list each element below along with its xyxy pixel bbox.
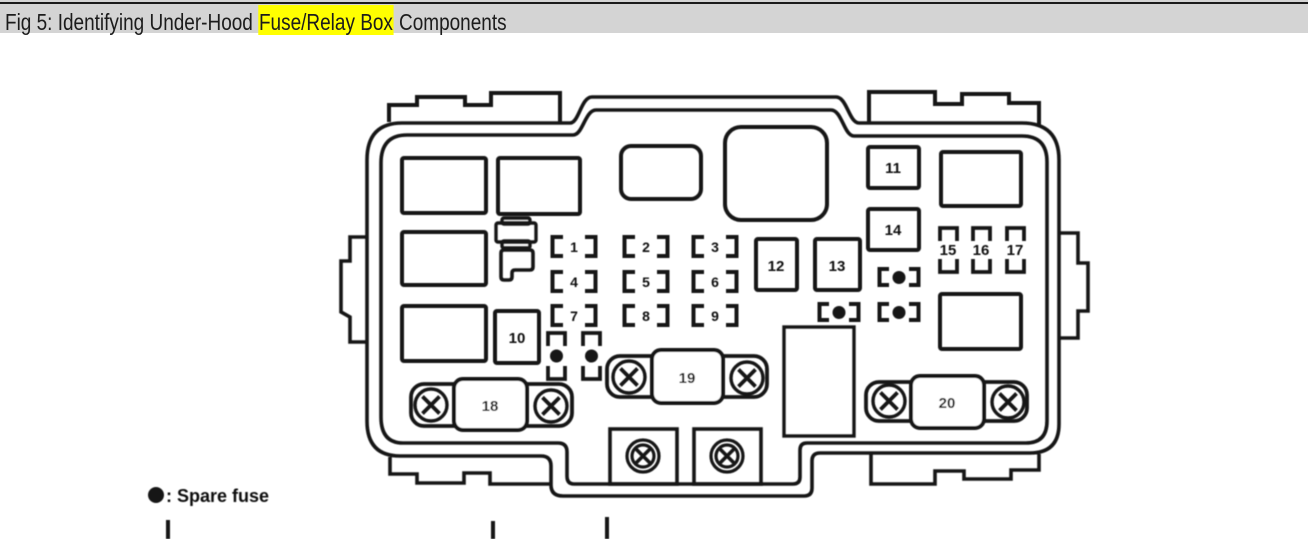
svg-text:10: 10 [509, 330, 526, 347]
svg-text:4: 4 [570, 274, 578, 290]
svg-text:5: 5 [642, 274, 650, 290]
svg-text:: Spare fuse: : Spare fuse [166, 486, 269, 506]
svg-text:6: 6 [711, 274, 719, 290]
svg-text:9: 9 [711, 308, 719, 324]
svg-text:20: 20 [939, 395, 956, 412]
svg-text:8: 8 [642, 308, 650, 324]
svg-text:17: 17 [1007, 242, 1024, 259]
svg-text:18: 18 [482, 398, 499, 415]
svg-text:12: 12 [768, 258, 785, 275]
svg-text:16: 16 [973, 242, 990, 259]
svg-text:19: 19 [679, 370, 696, 387]
svg-text:3: 3 [711, 239, 719, 255]
svg-text:11: 11 [885, 160, 901, 177]
svg-text:7: 7 [570, 308, 578, 324]
svg-text:14: 14 [885, 222, 902, 239]
svg-text:15: 15 [940, 242, 957, 259]
svg-text:13: 13 [829, 258, 846, 275]
svg-text:1: 1 [570, 239, 578, 255]
svg-text:2: 2 [642, 239, 650, 255]
